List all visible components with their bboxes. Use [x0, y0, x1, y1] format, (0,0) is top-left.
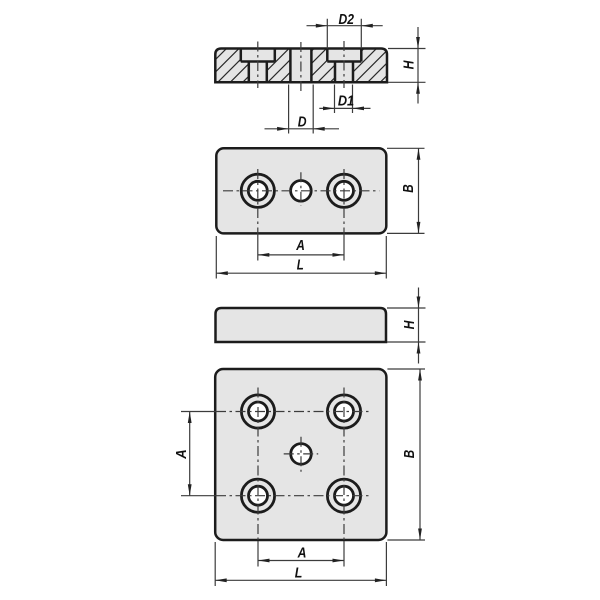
- svg-text:H: H: [402, 320, 418, 329]
- svg-text:A: A: [297, 545, 307, 561]
- svg-text:A: A: [174, 449, 190, 459]
- svg-text:D1: D1: [338, 93, 354, 109]
- svg-text:B: B: [401, 184, 417, 193]
- svg-text:H: H: [402, 60, 418, 69]
- svg-text:D2: D2: [339, 12, 355, 28]
- svg-text:A: A: [295, 238, 304, 254]
- svg-text:D: D: [298, 114, 307, 130]
- svg-text:L: L: [297, 258, 304, 274]
- svg-text:L: L: [295, 565, 303, 581]
- svg-text:B: B: [402, 449, 418, 458]
